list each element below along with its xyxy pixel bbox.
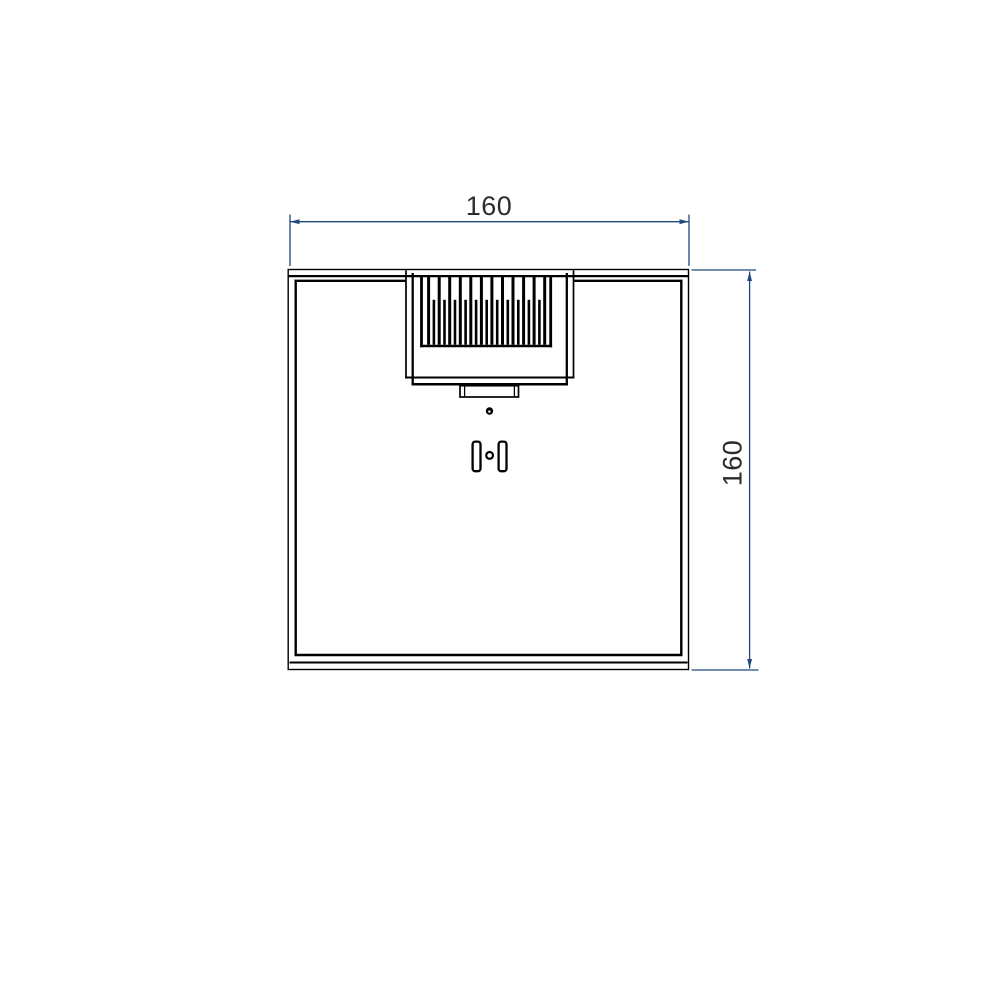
mounting-slots <box>473 442 507 472</box>
drawing-canvas <box>0 0 1000 1000</box>
dimension-top <box>290 215 689 267</box>
right-dimension-label: 160 <box>720 440 747 487</box>
fan-housing <box>405 270 574 385</box>
drawing-sheet: 160 160 <box>0 0 1000 1000</box>
top-dimension-label: 160 <box>466 193 513 220</box>
screw-head <box>486 407 493 414</box>
bottom-connector <box>460 386 519 397</box>
body-outline <box>288 270 688 670</box>
